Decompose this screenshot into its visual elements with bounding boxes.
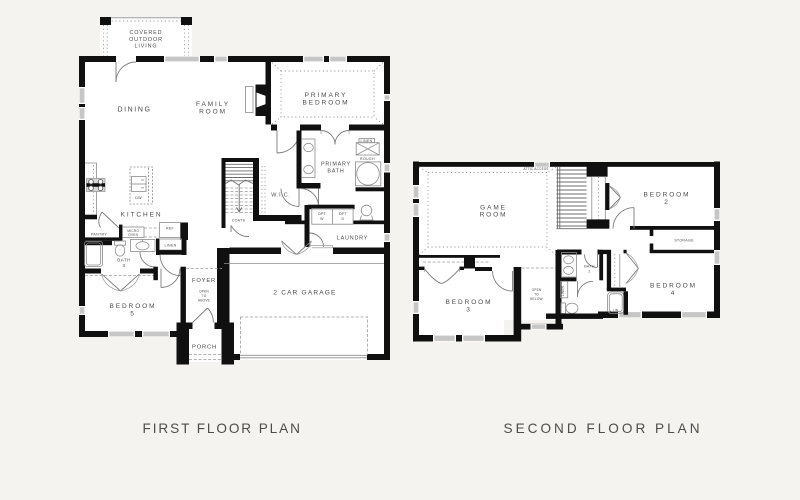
svg-text:REF: REF	[166, 227, 175, 231]
svg-text:4: 4	[671, 290, 677, 297]
svg-text:2: 2	[664, 199, 670, 206]
svg-text:STORAGE: STORAGE	[674, 238, 694, 242]
svg-text:LIN: LIN	[613, 309, 619, 313]
svg-text:BEDROOM: BEDROOM	[644, 192, 691, 199]
svg-text:KITCHEN: KITCHEN	[121, 212, 163, 219]
svg-text:ROUGH: ROUGH	[360, 157, 375, 161]
svg-text:OUTDOOR: OUTDOOR	[129, 37, 163, 43]
svg-text:COATS: COATS	[232, 219, 246, 223]
svg-text:OPEN: OPEN	[199, 290, 209, 294]
svg-text:PRIMARY: PRIMARY	[321, 162, 351, 168]
svg-text:GAME: GAME	[480, 205, 507, 212]
svg-text:2: 2	[588, 270, 590, 274]
svg-text:ATTIC ACCESS: ATTIC ACCESS	[523, 167, 548, 171]
svg-text:LINEN: LINEN	[164, 244, 176, 248]
svg-text:OPEN: OPEN	[532, 288, 542, 292]
svg-text:D: D	[342, 217, 345, 221]
svg-text:3: 3	[123, 263, 126, 268]
svg-text:BEDROOM: BEDROOM	[650, 283, 697, 290]
svg-text:PRIMARY: PRIMARY	[305, 92, 348, 99]
svg-text:ABOVE: ABOVE	[198, 299, 210, 303]
svg-text:COVERED: COVERED	[130, 30, 163, 36]
svg-text:BEDROOM: BEDROOM	[446, 299, 493, 306]
svg-text:SECOND FLOOR PLAN: SECOND FLOOR PLAN	[504, 421, 703, 436]
svg-text:FOYER: FOYER	[192, 278, 216, 284]
svg-text:ROOM: ROOM	[480, 212, 508, 219]
svg-text:BEDROOM: BEDROOM	[303, 100, 350, 107]
svg-text:W: W	[320, 217, 324, 221]
svg-text:PORCH: PORCH	[192, 345, 217, 351]
svg-text:PANTRY: PANTRY	[91, 233, 107, 237]
svg-text:BATH: BATH	[117, 258, 130, 263]
svg-text:DW: DW	[135, 196, 142, 200]
svg-text:W.I.C.: W.I.C.	[271, 193, 290, 199]
svg-text:FIRST FLOOR PLAN: FIRST FLOOR PLAN	[143, 421, 302, 436]
svg-text:BELOW: BELOW	[530, 297, 543, 301]
svg-text:LAUNDRY: LAUNDRY	[337, 236, 368, 242]
svg-text:LIVING: LIVING	[134, 44, 157, 50]
svg-text:OPT: OPT	[339, 212, 348, 216]
svg-text:LINEN: LINEN	[561, 285, 565, 296]
svg-text:TO: TO	[534, 293, 539, 297]
svg-text:TO: TO	[202, 294, 207, 298]
svg-text:BATH: BATH	[327, 169, 344, 175]
svg-text:OVEN: OVEN	[128, 233, 138, 237]
svg-text:2 CAR GARAGE: 2 CAR GARAGE	[273, 290, 336, 297]
svg-text:BEDROOM: BEDROOM	[110, 303, 157, 310]
svg-text:LINEN: LINEN	[360, 139, 372, 143]
svg-text:5: 5	[130, 311, 136, 318]
svg-text:BATH: BATH	[584, 265, 595, 269]
svg-text:OPT: OPT	[318, 212, 327, 216]
svg-text:3: 3	[466, 307, 472, 314]
svg-text:DINING: DINING	[117, 107, 151, 114]
svg-text:ROOM: ROOM	[199, 109, 227, 116]
svg-text:FAMILY: FAMILY	[196, 101, 230, 108]
